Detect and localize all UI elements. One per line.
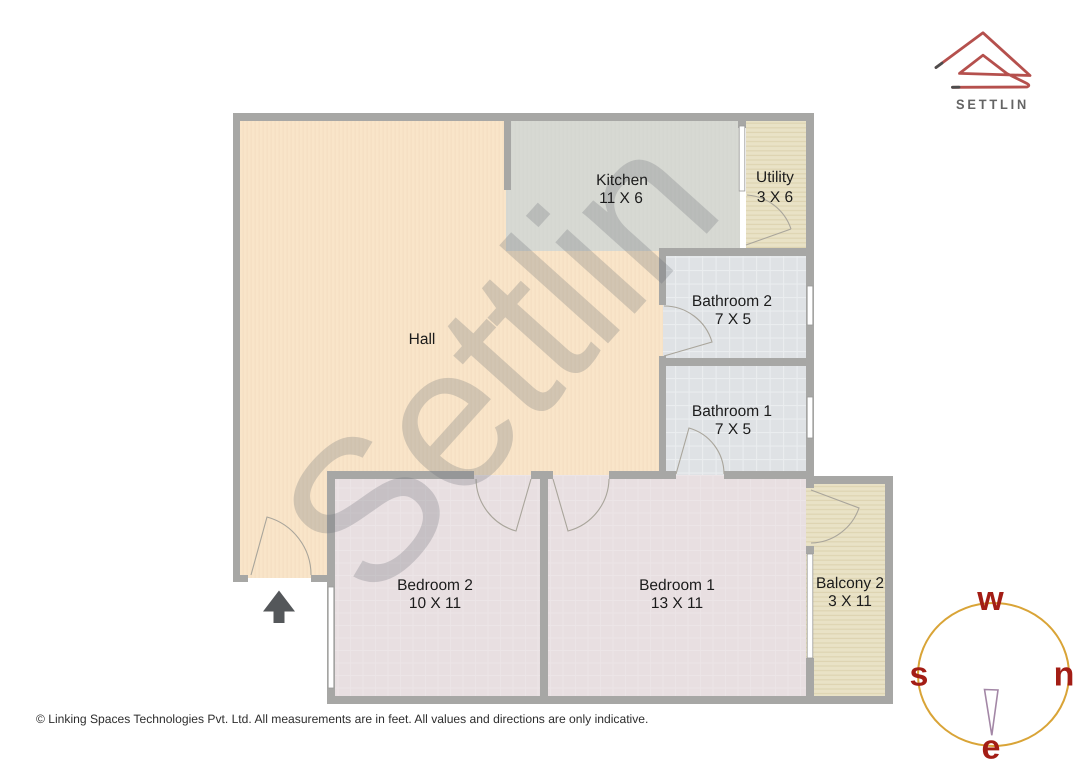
svg-text:3 X 11: 3 X 11: [828, 593, 872, 610]
svg-text:Hall: Hall: [409, 331, 436, 348]
svg-text:s: s: [910, 656, 929, 694]
svg-text:7 X 5: 7 X 5: [715, 421, 751, 438]
svg-text:Bedroom 1: Bedroom 1: [639, 577, 715, 594]
svg-text:n: n: [1054, 656, 1075, 694]
svg-text:Bathroom 1: Bathroom 1: [692, 403, 772, 420]
svg-text:Utility: Utility: [756, 169, 794, 186]
svg-text:w: w: [976, 580, 1004, 618]
svg-text:Bedroom 2: Bedroom 2: [397, 577, 473, 594]
svg-text:Kitchen: Kitchen: [596, 172, 648, 189]
svg-text:13 X 11: 13 X 11: [651, 595, 703, 612]
svg-text:10 X 11: 10 X 11: [409, 595, 461, 612]
svg-text:11 X 6: 11 X 6: [599, 190, 643, 207]
svg-text:7 X 5: 7 X 5: [715, 311, 751, 328]
svg-text:3 X 6: 3 X 6: [757, 189, 793, 206]
svg-text:Bathroom 2: Bathroom 2: [692, 293, 772, 310]
svg-text:SETTLIN: SETTLIN: [956, 97, 1029, 112]
svg-text:Balcony 2: Balcony 2: [816, 575, 884, 592]
svg-text:© Linking Spaces Technologies: © Linking Spaces Technologies Pvt. Ltd. …: [36, 712, 648, 726]
